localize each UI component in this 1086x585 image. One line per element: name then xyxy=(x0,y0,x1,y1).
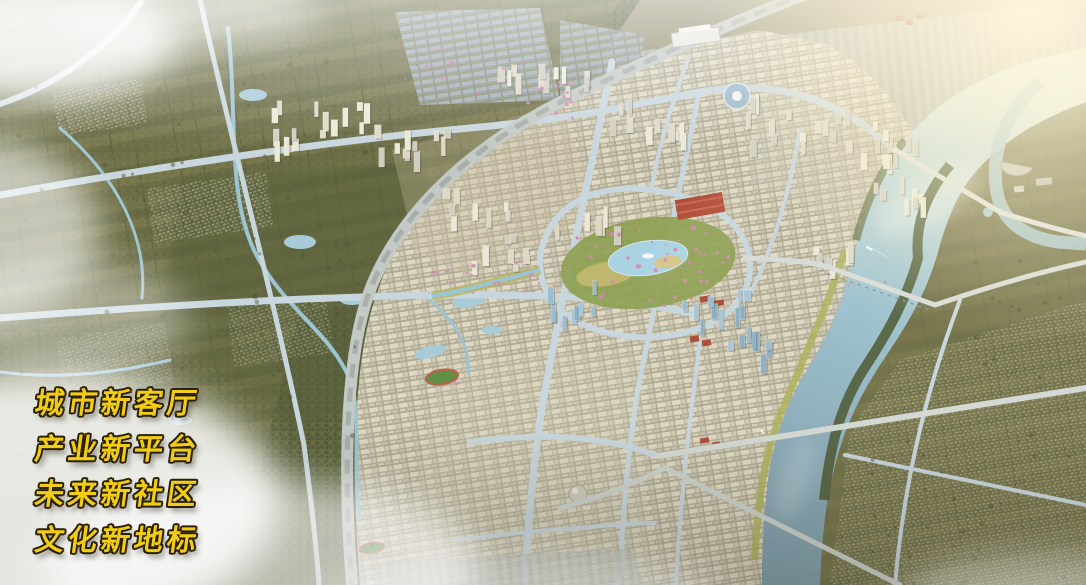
city-masterplan-rendering: 城市新客厅 产业新平台 未来新社区 文化新地标 xyxy=(0,0,1086,585)
aerial-scene xyxy=(0,0,1086,585)
